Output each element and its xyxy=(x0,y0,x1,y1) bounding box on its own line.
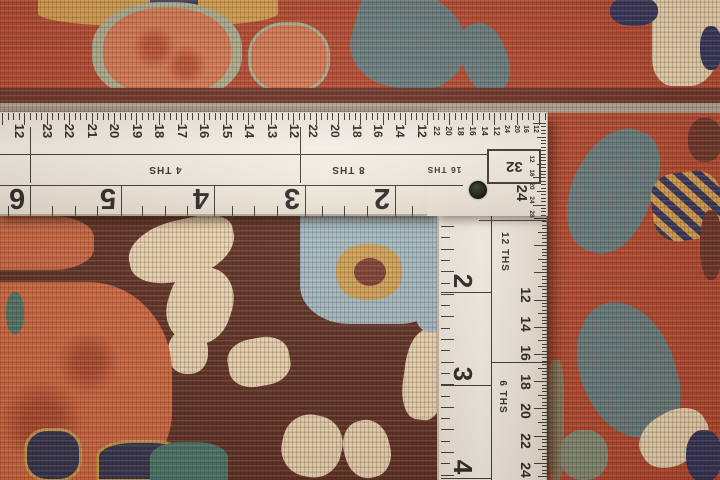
tick-mark xyxy=(542,385,547,386)
tick-mark xyxy=(542,405,547,406)
tick-mark xyxy=(232,206,233,217)
tick-mark xyxy=(542,303,547,304)
tick-mark xyxy=(542,429,547,430)
tick-mark xyxy=(541,157,546,158)
tick-mark xyxy=(441,226,454,227)
tick-mark xyxy=(541,140,546,141)
tick-mark xyxy=(441,418,450,419)
tick-mark xyxy=(541,133,546,134)
tick-mark xyxy=(533,205,546,206)
tick-mark xyxy=(277,206,278,217)
tick-mark xyxy=(187,206,188,217)
tick-mark xyxy=(542,334,547,335)
rug-navy-motif xyxy=(686,430,720,480)
tick-mark xyxy=(441,237,450,238)
tick-mark xyxy=(542,466,547,467)
ruler-horizontal-arm: 4 THS 8 THS 1223222120191817161514131222… xyxy=(0,112,437,216)
tick-mark xyxy=(8,206,9,217)
tick-mark xyxy=(541,167,546,168)
scale-number: 4 xyxy=(448,452,478,480)
tick-mark xyxy=(441,249,454,250)
tick-mark xyxy=(441,441,450,442)
tick-mark xyxy=(541,215,546,216)
rug-salmon-flower-small xyxy=(248,22,330,94)
tick-mark xyxy=(542,415,547,416)
tick-mark xyxy=(2,113,3,125)
tick-mark xyxy=(142,206,143,217)
tick-mark xyxy=(542,262,547,263)
scale-number: 22 xyxy=(511,426,541,456)
tick-mark xyxy=(542,235,547,236)
tick-mark xyxy=(542,323,547,324)
tick-mark xyxy=(542,289,547,290)
tick-mark xyxy=(541,143,546,144)
scale-number: 2 xyxy=(367,183,397,213)
tick-mark xyxy=(537,164,546,165)
rug-navy-motif xyxy=(24,428,82,480)
scale-section-label: 4 THS xyxy=(133,162,197,178)
tick-mark xyxy=(542,371,547,372)
tick-mark xyxy=(542,391,547,392)
tick-mark xyxy=(541,160,546,161)
tick-mark xyxy=(441,407,454,408)
tick-mark xyxy=(441,339,454,340)
tick-mark xyxy=(427,185,463,186)
tick-mark xyxy=(491,216,492,480)
tick-mark xyxy=(541,201,546,202)
tick-mark xyxy=(542,378,547,379)
tick-mark xyxy=(542,412,547,413)
tick-mark xyxy=(534,272,547,273)
tick-mark xyxy=(52,206,53,217)
tick-mark xyxy=(427,154,487,155)
tick-mark xyxy=(534,245,547,246)
rug-maroon-patch xyxy=(700,210,720,280)
tick-mark xyxy=(542,473,547,474)
tick-mark xyxy=(165,206,166,217)
tick-mark xyxy=(254,206,255,217)
rug-sage-bit xyxy=(560,430,608,480)
tick-mark xyxy=(541,147,546,148)
tick-mark xyxy=(441,350,450,351)
tick-mark xyxy=(542,310,547,311)
tick-mark xyxy=(542,470,547,471)
scale-number: 12 xyxy=(511,280,541,310)
tick-mark xyxy=(75,206,76,217)
tick-mark xyxy=(541,181,546,182)
scale-section-label: 12 THS xyxy=(497,220,513,284)
tick-mark xyxy=(441,316,454,317)
rug-coral-patch xyxy=(0,216,94,270)
tick-mark xyxy=(542,398,547,399)
tick-mark xyxy=(542,317,547,318)
tick-mark xyxy=(542,242,547,243)
tick-mark xyxy=(441,305,450,306)
tick-mark xyxy=(542,320,547,321)
tick-mark xyxy=(542,279,547,280)
tick-mark xyxy=(542,330,547,331)
scale-number: 28 xyxy=(516,199,546,229)
tick-mark xyxy=(441,429,454,430)
tick-mark xyxy=(542,252,547,253)
scale-section-label: 8 THS xyxy=(316,162,380,178)
tick-mark xyxy=(533,123,546,124)
tick-mark xyxy=(537,137,546,138)
tick-mark xyxy=(537,191,546,192)
tick-mark xyxy=(542,374,547,375)
ruler-corner: 16 THS 32 222018161412242016122412162024… xyxy=(427,112,548,216)
tick-mark xyxy=(97,206,98,217)
rug-teal-accent xyxy=(6,292,24,334)
tick-mark xyxy=(542,432,547,433)
tick-mark xyxy=(538,259,547,260)
hang-hole xyxy=(469,181,487,199)
tick-mark xyxy=(542,238,547,239)
tick-mark xyxy=(538,232,547,233)
tick-mark xyxy=(542,293,547,294)
scale-section-label: 6 THS xyxy=(495,365,511,429)
tick-mark xyxy=(542,269,547,270)
tick-mark xyxy=(541,188,546,189)
tick-mark xyxy=(542,344,547,345)
tick-mark xyxy=(542,388,547,389)
tick-mark xyxy=(412,206,413,217)
tick-mark xyxy=(542,419,547,420)
tick-mark xyxy=(322,206,323,217)
tick-mark xyxy=(542,364,547,365)
tick-mark xyxy=(541,211,546,212)
tick-mark xyxy=(542,296,547,297)
rug-maroon-patch xyxy=(688,118,720,162)
scale-number: 14 xyxy=(511,309,541,339)
tick-mark xyxy=(541,154,546,155)
tick-mark xyxy=(542,255,547,256)
tick-mark xyxy=(542,446,547,447)
scale-number: 12 xyxy=(521,114,551,144)
scale-number: 4 xyxy=(186,183,216,213)
scale-number: 3 xyxy=(448,359,478,389)
scale-number: 6 xyxy=(2,183,32,213)
scale-number: 24 xyxy=(511,455,541,480)
tick-mark xyxy=(542,337,547,338)
ruler-vertical-arm: 12 THS 6 THS 12141618202224234 xyxy=(437,216,547,480)
tick-mark xyxy=(542,402,547,403)
tick-mark xyxy=(541,126,546,127)
rug-navy-motif xyxy=(610,0,658,26)
photo-scene: 4 THS 8 THS 1223222120191817161514131222… xyxy=(0,0,720,480)
tick-mark xyxy=(541,174,546,175)
tick-mark xyxy=(542,249,547,250)
tick-mark xyxy=(344,206,345,217)
scale-number: 20 xyxy=(511,396,541,426)
rug-navy-motif xyxy=(700,26,720,70)
tick-mark xyxy=(542,442,547,443)
tick-mark xyxy=(441,328,450,329)
tick-mark xyxy=(542,276,547,277)
tick-mark xyxy=(541,208,546,209)
tick-mark xyxy=(542,266,547,267)
tick-mark xyxy=(541,198,546,199)
rug-cream-scroll xyxy=(168,330,208,374)
scale-section-label: 16 THS xyxy=(412,162,476,178)
scale-number: 16 xyxy=(511,338,541,368)
tick-mark xyxy=(533,177,546,178)
tick-mark xyxy=(441,260,450,261)
scale-number: 3 xyxy=(277,183,307,213)
tick-mark xyxy=(0,154,437,155)
tick-mark xyxy=(542,439,547,440)
tick-mark xyxy=(542,459,547,460)
tick-mark xyxy=(542,453,547,454)
rug-salmon-flower xyxy=(103,8,231,96)
tick-mark xyxy=(300,127,301,183)
tick-mark xyxy=(541,171,546,172)
scale-number: 18 xyxy=(511,367,541,397)
tick-mark xyxy=(367,206,368,217)
tick-mark xyxy=(542,283,547,284)
tick-mark xyxy=(542,347,547,348)
scale-number: 2 xyxy=(448,266,478,296)
tick-mark xyxy=(542,357,547,358)
tick-mark xyxy=(533,150,546,151)
rug-flower-center xyxy=(354,258,386,286)
tick-mark xyxy=(542,306,547,307)
tick-mark xyxy=(30,127,31,183)
rug-teal-accent xyxy=(150,442,228,480)
tick-mark xyxy=(441,396,450,397)
tick-mark xyxy=(542,456,547,457)
tick-mark xyxy=(541,194,546,195)
tick-mark xyxy=(542,351,547,352)
tick-mark xyxy=(542,425,547,426)
tick-mark xyxy=(541,130,546,131)
tick-mark xyxy=(541,184,546,185)
